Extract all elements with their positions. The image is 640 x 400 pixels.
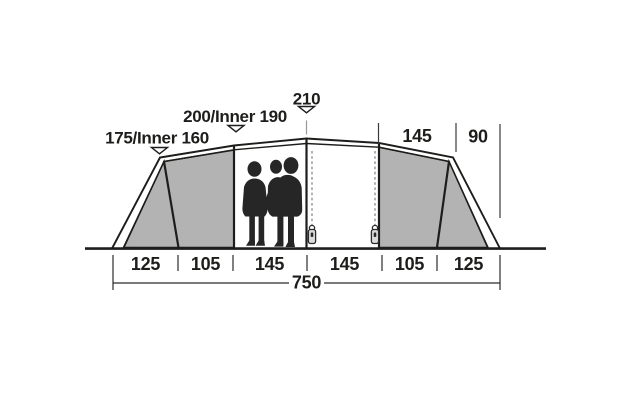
tent-dimensions-diagram: 175/Inner 160 200/Inner 190 210 145 90 1… [0,0,640,400]
marker-triangle-front-icon [152,148,168,154]
bottom-segment-label-1: 105 [191,254,220,274]
bottom-segment-label-3: 145 [330,254,359,274]
height-label-mid: 200/Inner 190 [183,107,287,126]
bottom-segment-label-4: 105 [395,254,424,274]
height-label-front: 175/Inner 160 [105,129,209,148]
door-zippers [308,151,378,244]
total-length-label: 750 [292,273,321,293]
marker-triangle-mid-icon [228,126,244,132]
right-zipper-pull-icon [371,225,378,243]
top-width-label-porch: 90 [468,127,488,147]
left-zipper-pull-icon [308,225,315,243]
people-silhouette-icon [242,157,302,247]
bottom-segment-label-0: 125 [131,254,160,274]
bottom-segment-label-2: 145 [255,254,284,274]
tent-diagram-canvas: 175/Inner 160 200/Inner 190 210 145 90 1… [0,0,640,400]
top-width-label-bedroom: 145 [402,126,431,146]
height-label-peak: 210 [293,90,320,109]
bottom-segment-label-5: 125 [454,254,483,274]
